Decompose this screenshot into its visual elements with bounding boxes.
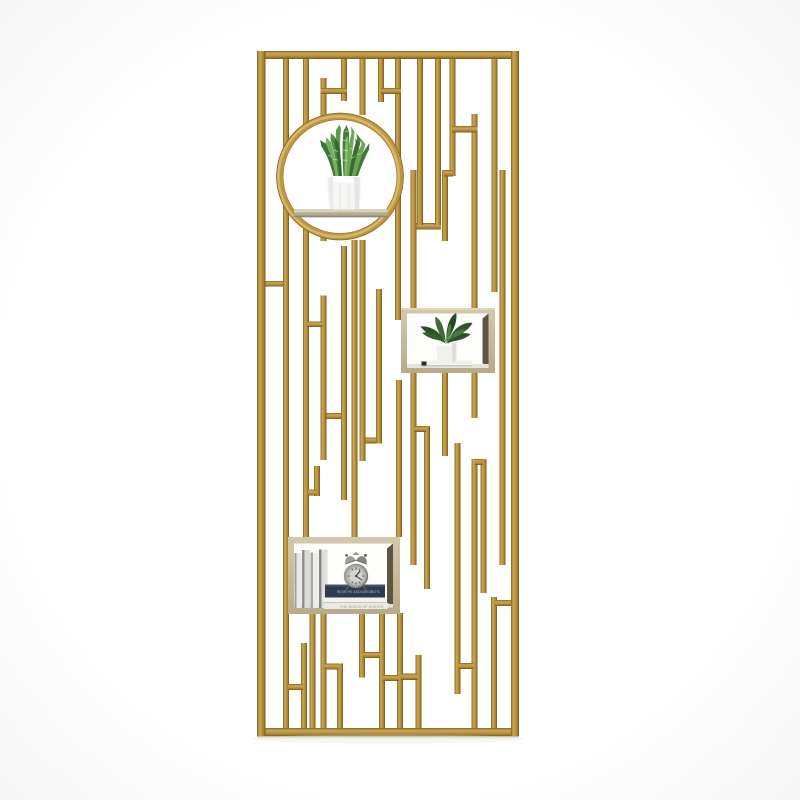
svg-text:WOW HE ASOCMSUBOTL: WOW HE ASOCMSUBOTL: [337, 590, 380, 594]
svg-text:THE WORLD OF GHOSTS: THE WORLD OF GHOSTS: [340, 605, 384, 609]
